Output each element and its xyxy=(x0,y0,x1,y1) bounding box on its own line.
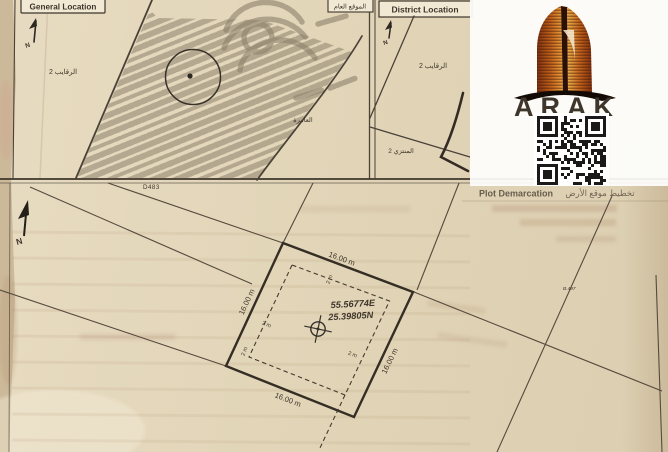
general-title-ar: الموقع العام xyxy=(334,3,366,11)
district-map-road-1 xyxy=(370,16,414,118)
district-map-road-2 xyxy=(370,127,470,157)
district-title: District Location xyxy=(391,5,458,15)
plot-header-ar: تخطيط موقع الأرض xyxy=(565,187,635,199)
setback-label-bottomright: 2 m xyxy=(347,351,358,360)
dim-bottom: 16.00 m xyxy=(273,390,302,408)
bleedthrough-text xyxy=(80,205,617,348)
north-arrow-general xyxy=(29,18,37,42)
setback-label-bottomleft: 2 m xyxy=(241,346,250,357)
coordinate-east: 55.56774E xyxy=(330,298,376,310)
north-label-district: N xyxy=(383,40,389,47)
district-area-label: المنتزي 2 xyxy=(388,147,414,155)
plot-highlight-dot xyxy=(187,73,192,78)
setback-label-top: 2 m xyxy=(326,274,335,285)
dim-right: 16.00 m xyxy=(380,347,400,376)
general-title: General Location xyxy=(30,3,97,12)
general-district-label: الرقايب 2 xyxy=(49,68,77,76)
north-arrow-district xyxy=(385,20,392,38)
district-map-road-3 xyxy=(441,93,468,171)
ref-label: B.497 xyxy=(563,286,576,292)
north-label-general: N xyxy=(24,42,31,50)
setback-line xyxy=(249,265,390,395)
district-district-label: الرقايب 2 xyxy=(419,62,447,70)
housing-blocks xyxy=(0,0,438,295)
road-label: D483 xyxy=(143,184,160,191)
arak-watermark: ARAK xyxy=(470,0,668,186)
plot-header-en: Plot Demarcation xyxy=(479,189,553,199)
general-area-label: العامرة xyxy=(293,116,313,124)
qr-code xyxy=(534,113,609,186)
coordinate-north: 25.39805N xyxy=(327,310,374,322)
north-label-plot: N xyxy=(15,236,24,247)
plot-demarcation-document: N General Location الموقع العام الرقايب … xyxy=(0,0,668,452)
